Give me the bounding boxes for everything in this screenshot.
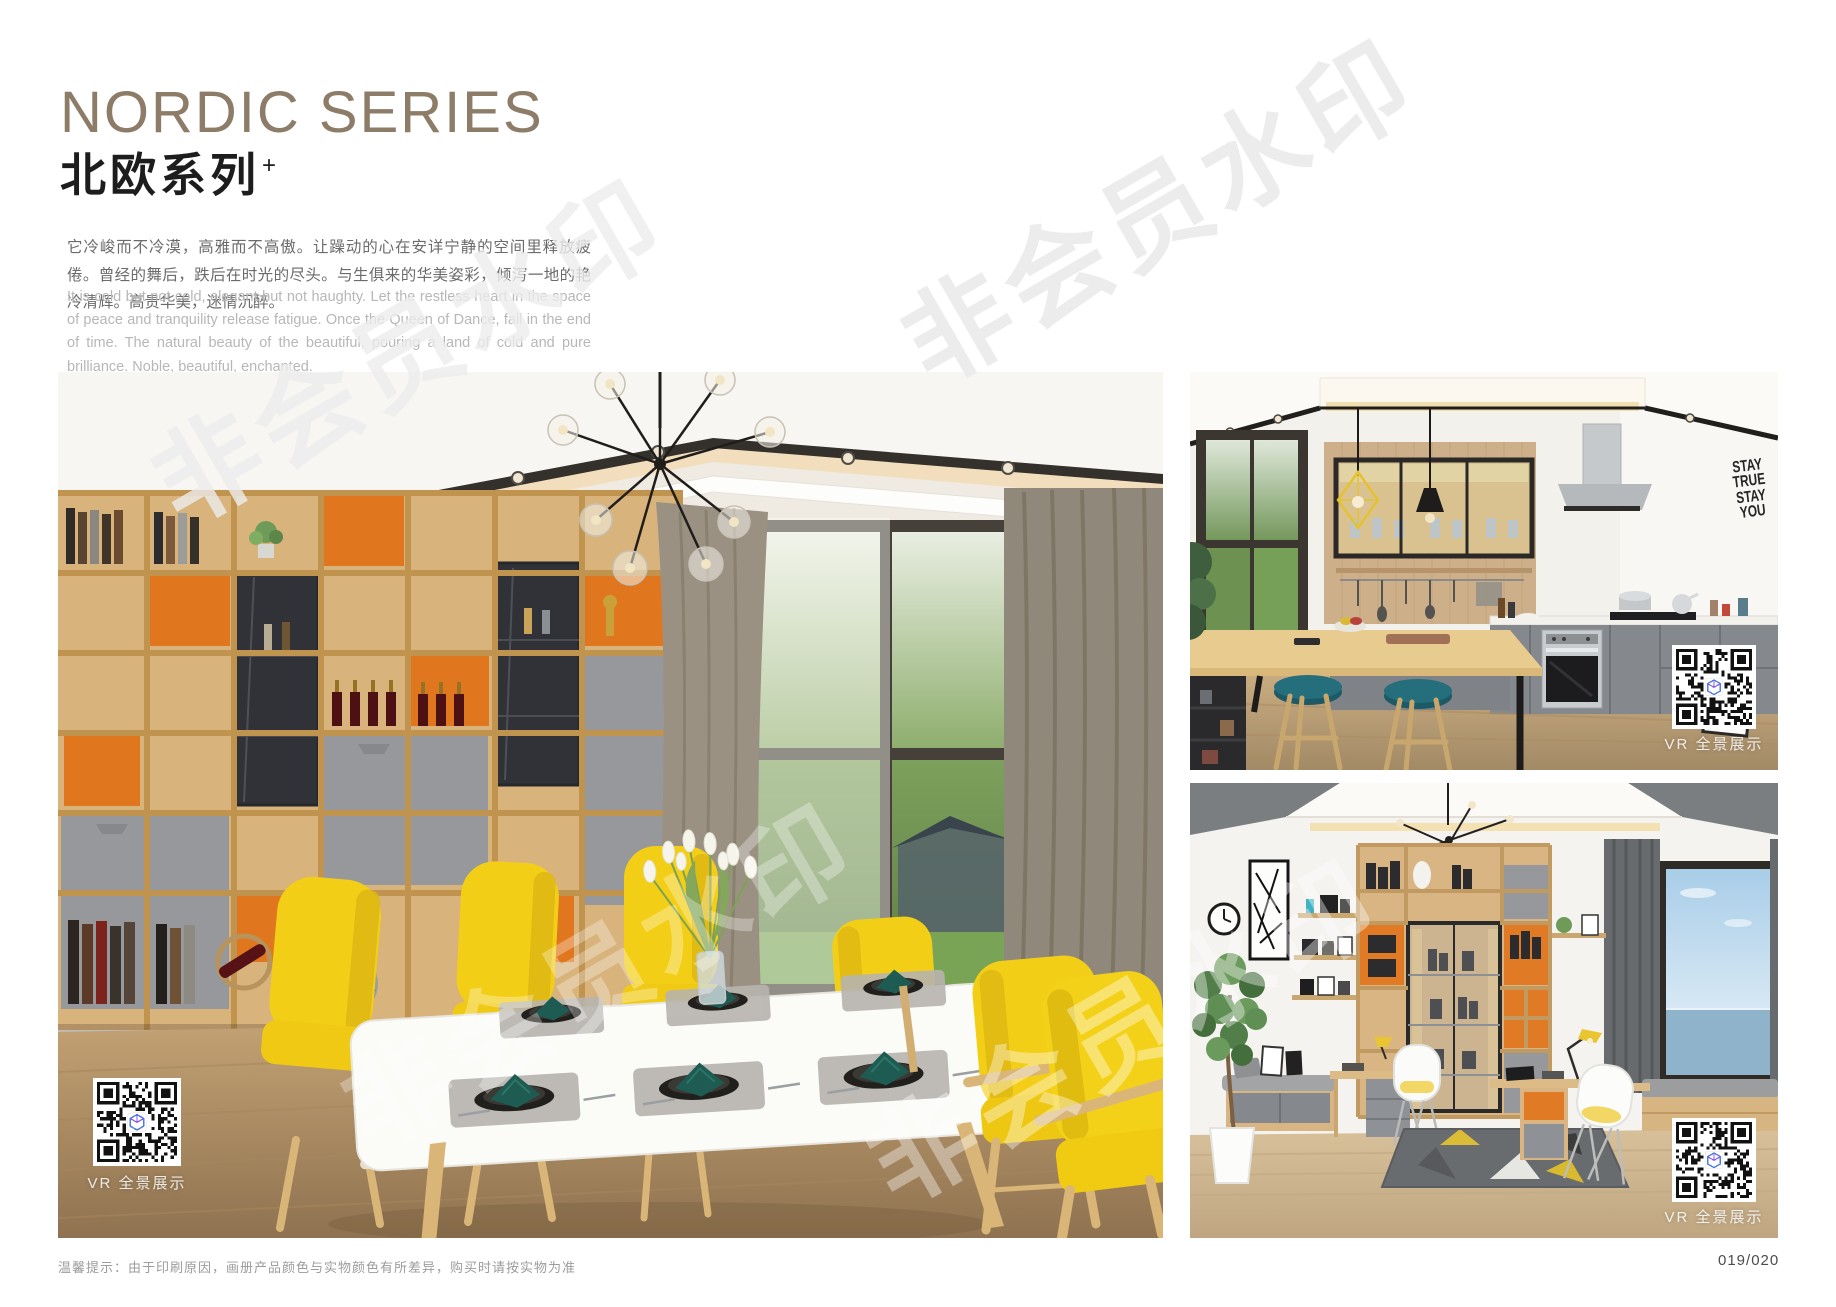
kitchen-photo: STAY TRUE STAY YOU VR 全景展示 xyxy=(1190,372,1778,770)
series-title-en: NORDIC SERIES xyxy=(60,84,544,142)
membership-watermark: 非会员水印 xyxy=(870,0,1441,414)
dining-room-photo: VR 全景展示 xyxy=(58,372,1163,1238)
wall-clock xyxy=(1209,904,1239,934)
window xyxy=(1658,861,1778,1083)
vr-qr-code xyxy=(1672,645,1756,729)
series-title-zh-text: 北欧系列 xyxy=(60,149,260,201)
catalog-page: { "header": { "title_en": "NORDIC SERIES… xyxy=(0,0,1836,1307)
series-title-zh: 北欧系列+ xyxy=(60,152,280,198)
dining-room-scene xyxy=(58,372,1163,1238)
study-room-photo: VR 全景展示 xyxy=(1190,783,1778,1238)
open-shelf-unit xyxy=(1190,676,1246,770)
series-description-en: It is cold but not cold, elegant but not… xyxy=(67,286,591,379)
vr-panorama-label: VR 全景展示 xyxy=(1658,1206,1770,1227)
vr-panorama-label: VR 全景展示 xyxy=(1658,733,1770,754)
vr-panorama-label: VR 全景展示 xyxy=(76,1172,198,1193)
page-number: 019/020 xyxy=(1718,1252,1779,1269)
wall-decal-text: STAY TRUE STAY YOU xyxy=(1726,456,1774,522)
vr-qr-code xyxy=(1672,1118,1756,1202)
built-in-oven xyxy=(1542,630,1602,708)
books-bottom xyxy=(68,920,195,1004)
vr-qr-code xyxy=(93,1078,181,1166)
print-disclaimer: 温馨提示：由于印刷原因，画册产品颜色与实物颜色有所差异，购买时请按实物为准 xyxy=(58,1257,576,1276)
qr-pattern xyxy=(1676,1122,1752,1198)
qr-pattern xyxy=(97,1082,177,1162)
qr-pattern xyxy=(1676,649,1752,725)
abstract-art-frame xyxy=(1250,861,1288,959)
series-title-plus: + xyxy=(262,152,280,179)
